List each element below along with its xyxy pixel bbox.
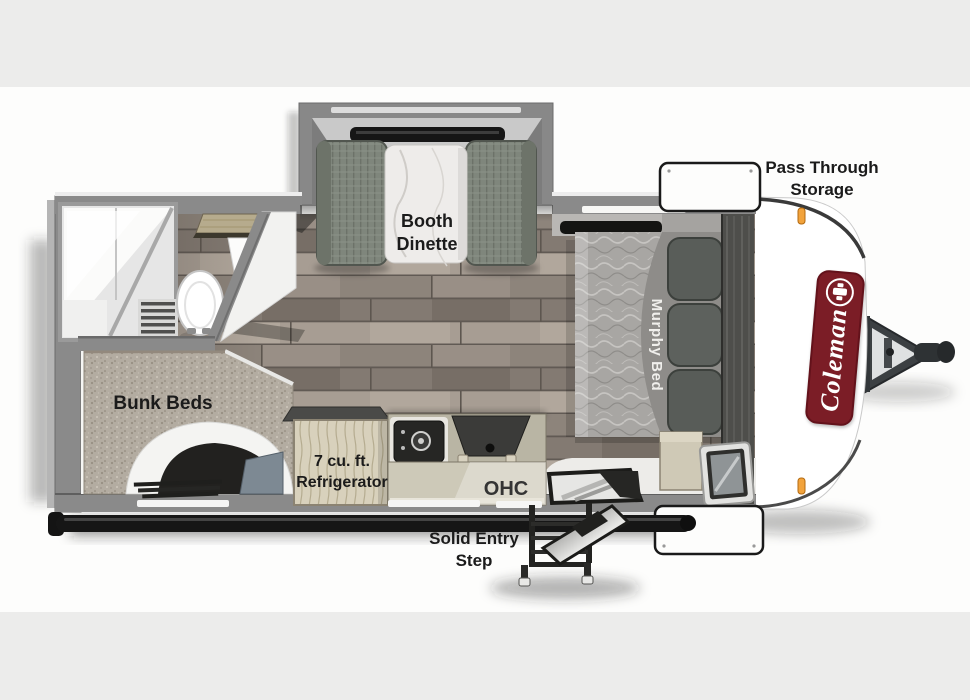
- ohc-label: OHC: [466, 478, 546, 500]
- booth-dinette-label: Booth Dinette: [357, 210, 497, 256]
- booth-dinette-line1: Booth: [357, 210, 497, 233]
- booth-dinette-line2: Dinette: [357, 233, 497, 256]
- brand-name: Coleman: [814, 307, 853, 413]
- refrigerator-label: 7 cu. ft. Refrigerator: [272, 451, 412, 493]
- bunk-beds: [84, 351, 293, 499]
- lantern-icon: [825, 277, 855, 307]
- refrigerator-line2: Refrigerator: [272, 472, 412, 493]
- bedroom-window: [699, 442, 754, 506]
- pass-through-storage-label: Pass Through Storage: [722, 157, 922, 201]
- refrigerator-line1: 7 cu. ft.: [272, 451, 412, 472]
- pass-through-line2: Storage: [722, 179, 922, 201]
- murphy-bed-label: Murphy Bed: [647, 296, 665, 394]
- shower-vent: [138, 299, 178, 338]
- slide-out-window: [350, 127, 505, 142]
- marker-light-bottom: [798, 478, 805, 494]
- solid-entry-step-label: Solid Entry Step: [394, 528, 554, 572]
- entry-step-well: [549, 470, 641, 503]
- entry-step-line1: Solid Entry: [394, 528, 554, 550]
- bunk-beds-label: Bunk Beds: [83, 393, 243, 415]
- pass-through-line1: Pass Through: [722, 157, 922, 179]
- bathroom-divider-wall: [78, 337, 215, 351]
- entry-step-line2: Step: [394, 550, 554, 572]
- floorplan-page: Pass Through Storage Booth Dinette Murph…: [0, 0, 970, 700]
- marker-light-top: [798, 208, 805, 224]
- bunk-ladder: [134, 480, 223, 499]
- sofa-cushions: [668, 238, 722, 434]
